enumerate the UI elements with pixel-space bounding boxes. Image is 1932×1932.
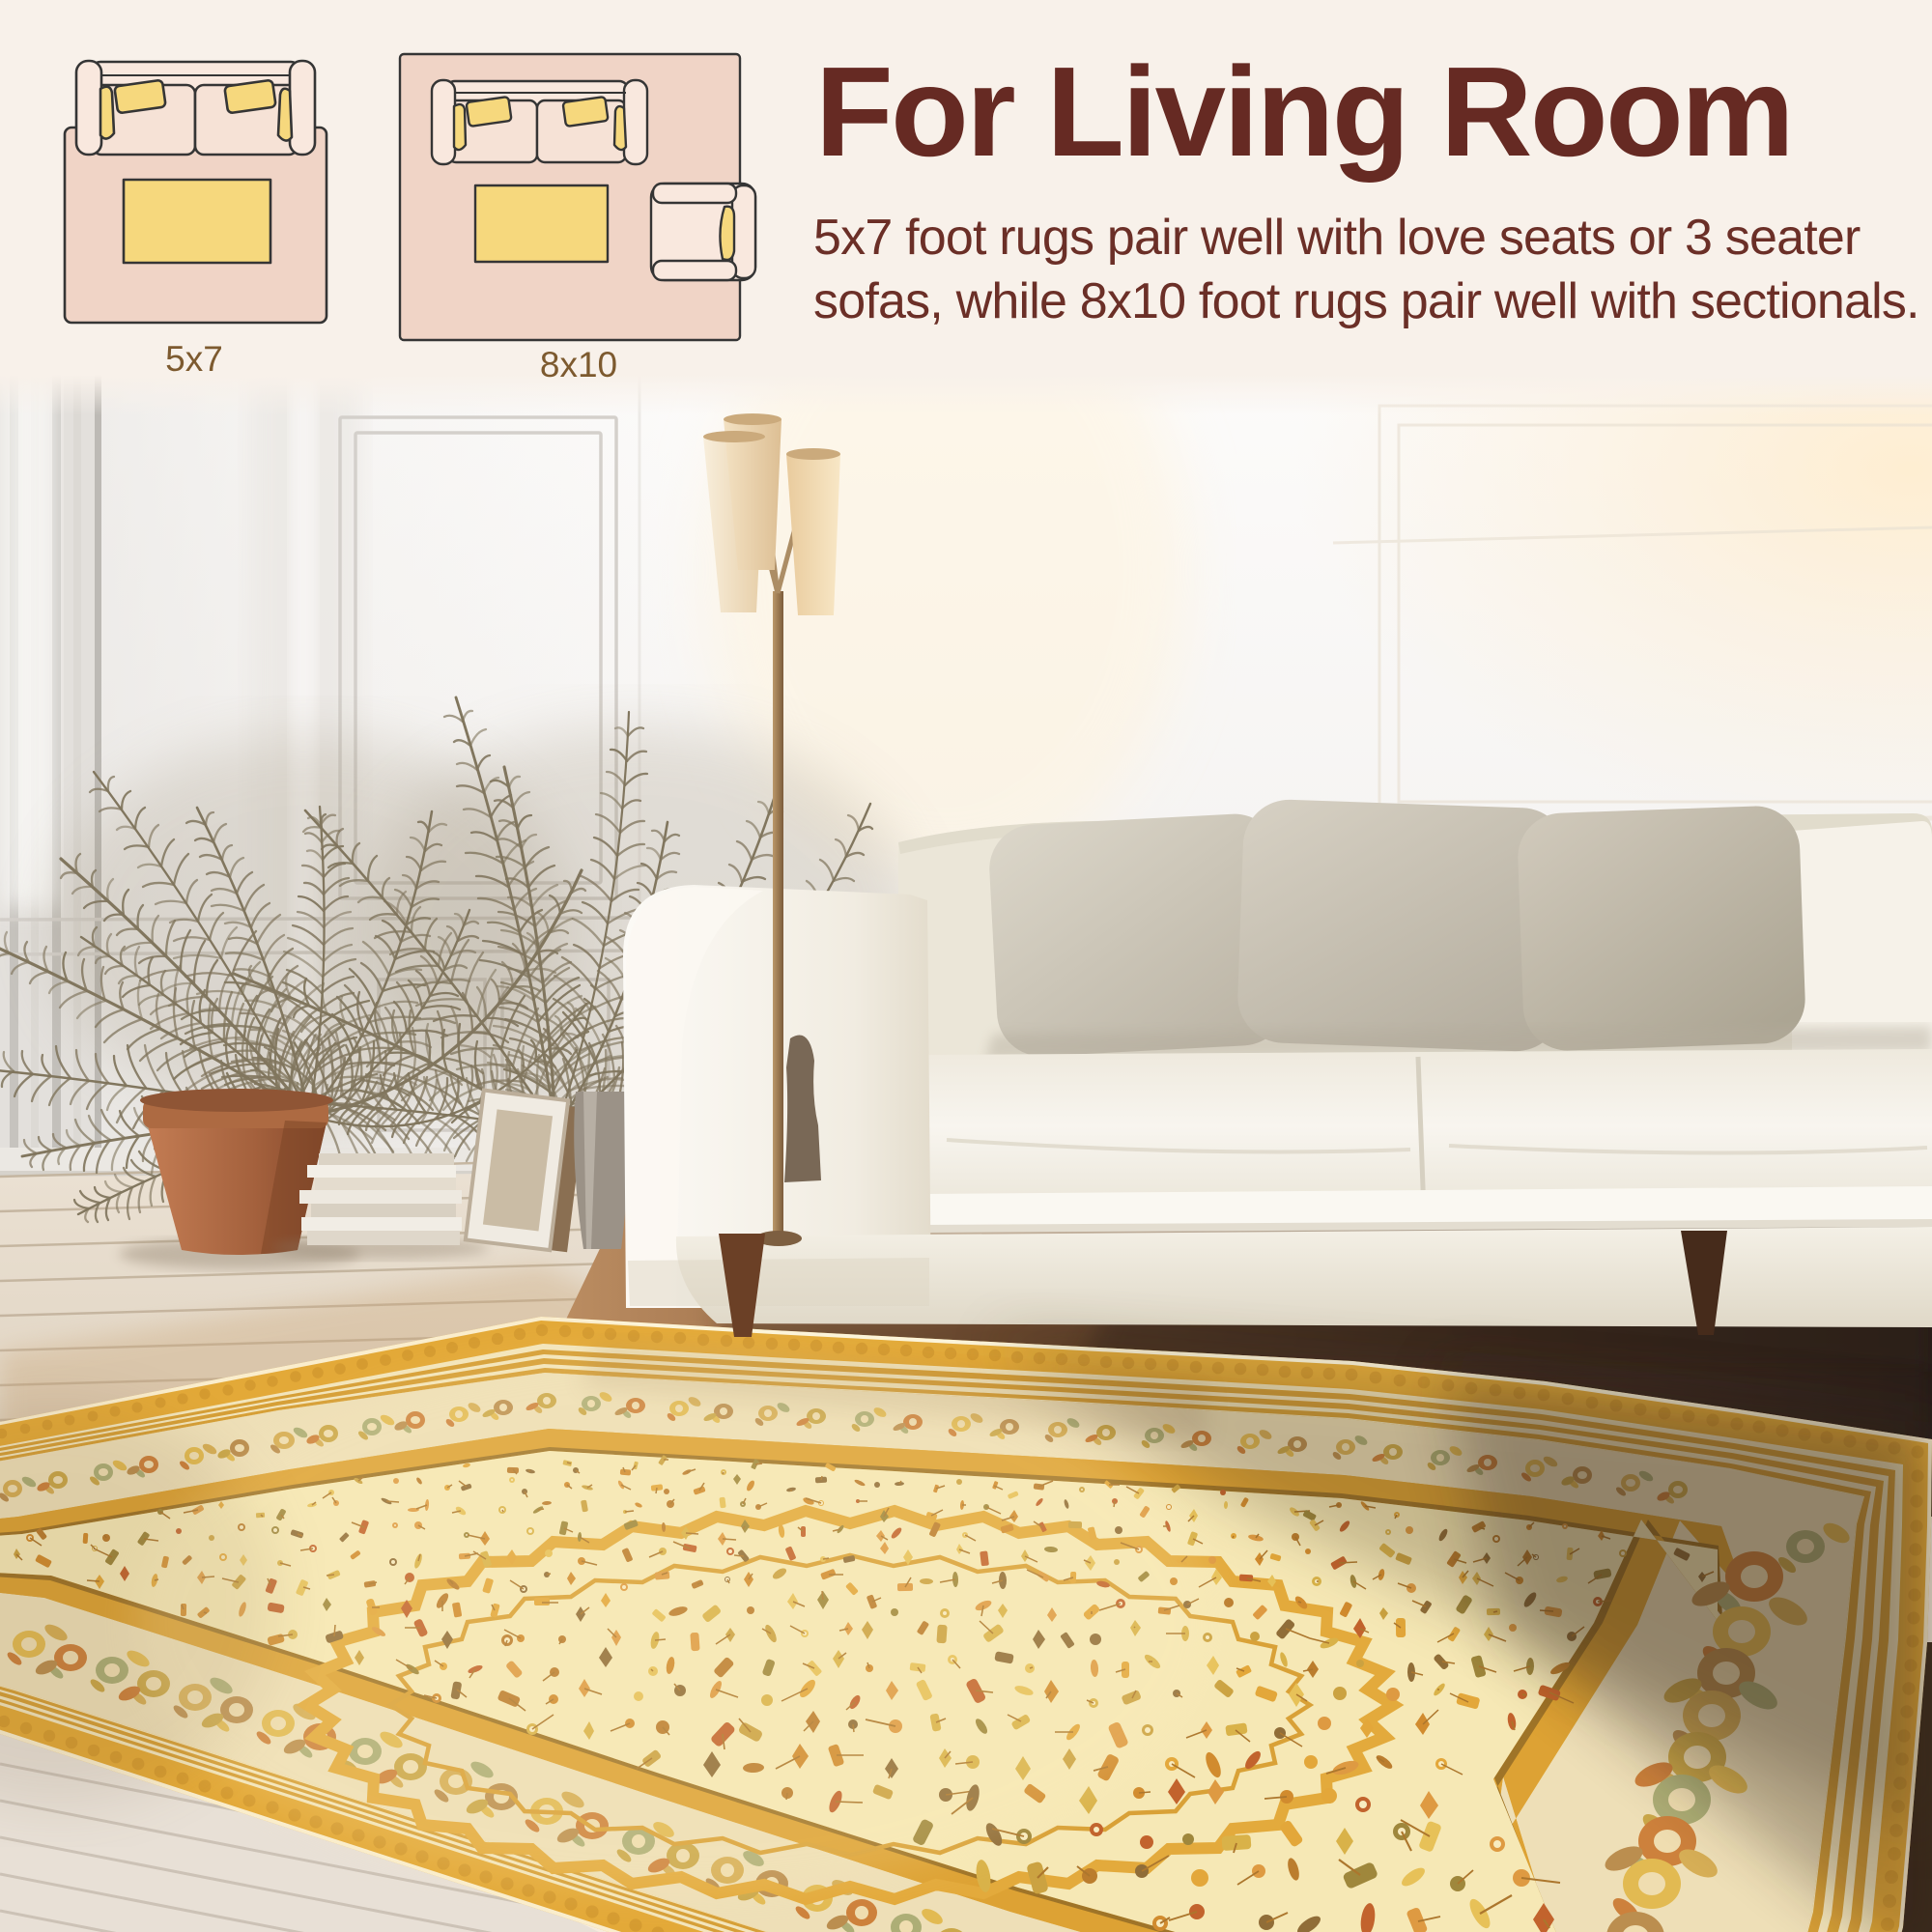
svg-text:5x7: 5x7 — [165, 339, 223, 379]
svg-text:8x10: 8x10 — [540, 345, 617, 384]
